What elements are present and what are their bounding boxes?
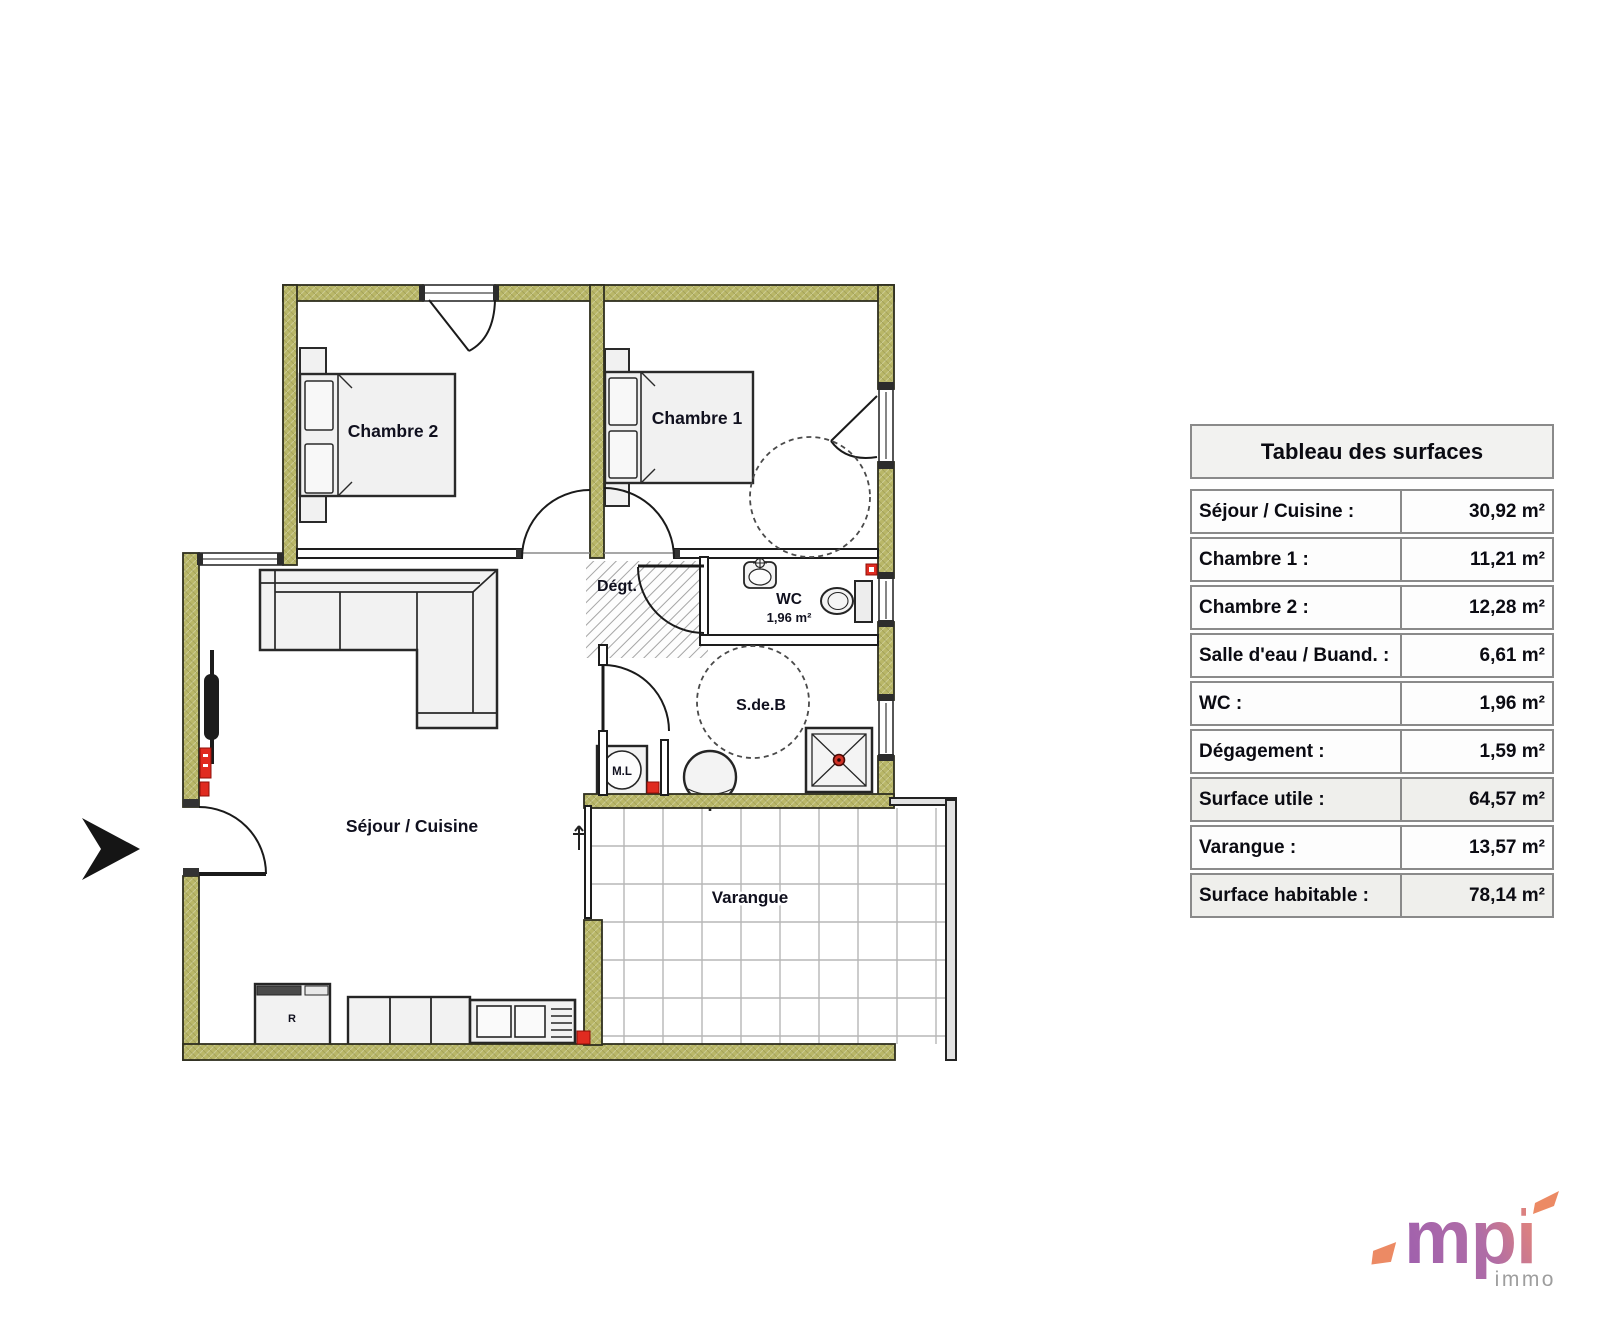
surface-table: Tableau des surfaces Séjour / Cuisine : … [1190,424,1554,921]
surface-table-rows: Séjour / Cuisine : 30,92 m² Chambre 1 : … [1190,489,1554,918]
table-row: WC : 1,96 m² [1190,681,1554,726]
table-row: Varangue : 13,57 m² [1190,825,1554,870]
degagement-hatch-floor [586,561,708,658]
row-label: Surface utile : [1192,779,1400,820]
logo-m-wedge [1370,1240,1398,1266]
label-wc: WC [776,591,802,608]
table-row: Chambre 1 : 11,21 m² [1190,537,1554,582]
row-label: Surface habitable : [1192,875,1400,916]
row-label: Varangue : [1192,827,1400,868]
page: Chambre 2 Chambre 1 Dégt. WC 1,96 m² S.d… [0,0,1600,1337]
label-wc-area: 1,96 m² [767,610,812,625]
table-row-total: Surface habitable : 78,14 m² [1190,873,1554,918]
exterior-walls [183,285,895,1060]
label-salle-eau: S.de.B [736,697,786,714]
row-value: 78,14 m² [1400,875,1552,916]
sofa [260,570,497,728]
table-row-total: Surface utile : 64,57 m² [1190,777,1554,822]
label-lave-linge: M.L [612,766,632,778]
varangue-railing [890,798,956,1060]
row-value: 12,28 m² [1400,587,1552,628]
row-value: 1,59 m² [1400,731,1552,772]
table-row: Dégagement : 1,59 m² [1190,729,1554,774]
row-label: Séjour / Cuisine : [1192,491,1400,532]
row-value: 13,57 m² [1400,827,1552,868]
room-labels: Chambre 2 Chambre 1 Dégt. WC 1,96 m² S.d… [288,408,812,1025]
kitchen-units [255,984,575,1045]
surface-table-title: Tableau des surfaces [1190,424,1554,479]
row-label: Dégagement : [1192,731,1400,772]
row-value: 11,21 m² [1400,539,1552,580]
row-label: Salle d'eau / Buand. : [1192,635,1400,676]
table-row: Séjour / Cuisine : 30,92 m² [1190,489,1554,534]
entrance-arrow-icon [82,818,140,880]
label-chambre2: Chambre 2 [348,421,439,441]
row-value: 64,57 m² [1400,779,1552,820]
row-value: 6,61 m² [1400,635,1552,676]
row-value: 30,92 m² [1400,491,1552,532]
row-label: WC : [1192,683,1400,724]
label-refrigerateur: R [288,1013,296,1025]
table-row: Salle d'eau / Buand. : 6,61 m² [1190,633,1554,678]
brand-logo: mpi immo [1370,1186,1560,1291]
row-label: Chambre 1 : [1192,539,1400,580]
label-chambre1: Chambre 1 [652,408,743,428]
brand-logo-sub: immo [1495,1268,1556,1291]
row-value: 1,96 m² [1400,683,1552,724]
row-label: Chambre 2 : [1192,587,1400,628]
varangue-tile-floor [592,808,946,1044]
wall-equipment [204,650,219,764]
label-sejour: Séjour / Cuisine [346,816,479,836]
label-varangue: Varangue [712,888,789,907]
door-cross-symbol [573,826,585,850]
table-row: Chambre 2 : 12,28 m² [1190,585,1554,630]
label-degagement: Dégt. [597,578,637,595]
